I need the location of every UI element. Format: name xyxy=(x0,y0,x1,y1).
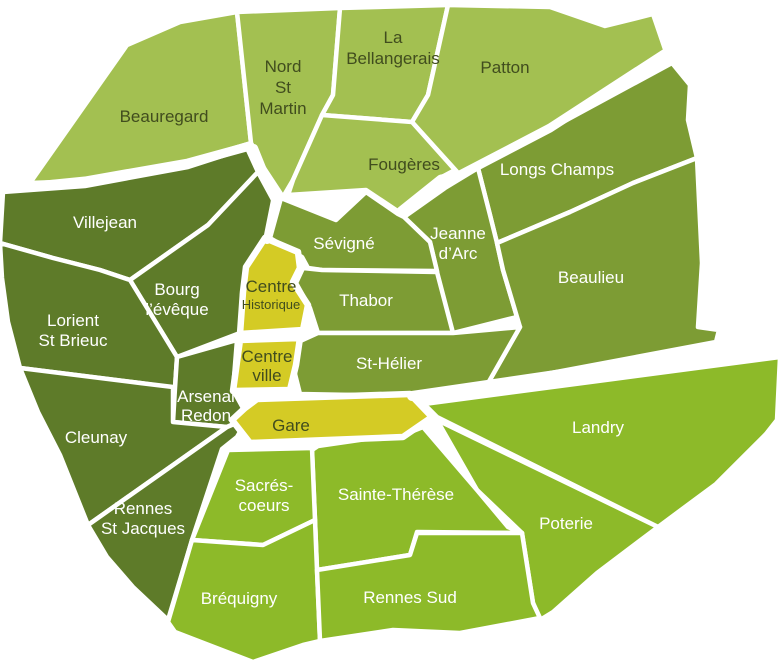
region-thabor[interactable] xyxy=(296,268,453,333)
map-canvas: BeauregardNordStMartinLaBellangeraisPatt… xyxy=(0,0,784,667)
region-gare[interactable] xyxy=(232,394,432,443)
rennes-districts-map: BeauregardNordStMartinLaBellangeraisPatt… xyxy=(0,0,784,667)
region-centre-ville[interactable] xyxy=(233,338,300,391)
